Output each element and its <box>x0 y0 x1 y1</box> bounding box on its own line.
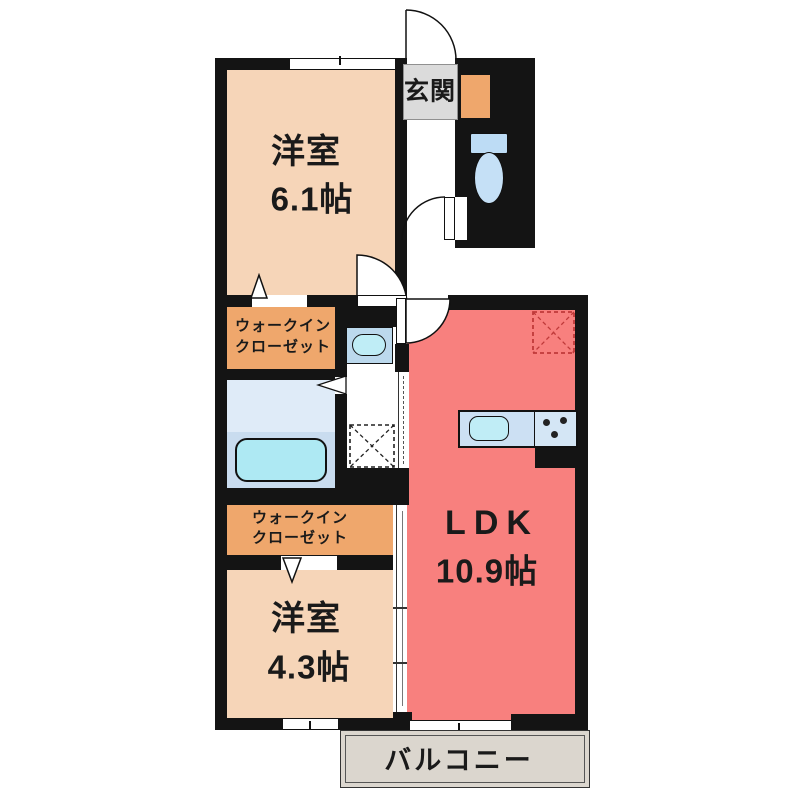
wall-ldk-west-a <box>395 344 409 372</box>
walk-in-closet-lower-label-1: ウォークイン <box>252 511 348 526</box>
window-tick <box>309 721 311 729</box>
ldk-size: 10.9帖 <box>436 555 538 588</box>
bathroom-folding-door-icon <box>316 375 347 396</box>
wall-under-stove <box>535 447 578 468</box>
ldk-door-leaf <box>396 298 406 344</box>
window-tick <box>339 56 341 65</box>
wall-left <box>215 58 227 730</box>
wall-bottom-a <box>215 718 283 730</box>
wall-ldk-north <box>448 295 588 310</box>
wall-bedroom-large-south-a <box>215 295 252 307</box>
floor-plan: 洋室 6.1帖 玄関 ウォークイン クローゼット LDK 10.9帖 ウォークイ… <box>0 0 800 800</box>
washbasin-icon <box>346 327 393 364</box>
bedroom-small-sliding-door <box>393 505 407 712</box>
bedroom-large-name: 洋室 <box>271 135 341 169</box>
toilet-tank-icon <box>470 133 508 154</box>
walk-in-closet-lower-label-2: クローゼット <box>252 531 348 546</box>
shoe-cabinet <box>461 75 490 118</box>
kitchen-counter <box>458 410 578 448</box>
folding-door-icon <box>281 557 303 584</box>
wall-bottom-b <box>338 718 412 730</box>
folding-door-icon <box>249 273 269 300</box>
ldk-name: LDK <box>445 506 539 540</box>
bedroom-small-floor <box>227 570 393 718</box>
refrigerator-space-icon <box>531 310 576 355</box>
bedroom-small-name: 洋室 <box>271 602 341 636</box>
wall-top-left <box>215 58 290 70</box>
entrance-label: 玄関 <box>404 80 456 105</box>
bedroom-large-size: 6.1帖 <box>271 183 354 216</box>
toilet-door-leaf <box>444 197 455 240</box>
bathtub-icon <box>235 438 327 482</box>
wall-ldk-west-b <box>395 468 409 505</box>
toilet-door-opening <box>455 197 467 240</box>
walk-in-closet-upper-label-1: ウォークイン <box>235 319 331 334</box>
toilet-door-swing-icon <box>401 196 447 242</box>
toilet-bowl-icon <box>474 152 504 204</box>
washing-machine-space-icon <box>348 423 396 469</box>
ldk-door-swing-icon <box>405 298 453 346</box>
window-bedroom-large <box>290 58 395 70</box>
washroom-sliding-door <box>395 372 409 468</box>
wall-bathroom-south <box>215 488 397 505</box>
bedroom-small-size: 4.3帖 <box>268 651 351 684</box>
kitchen-sink-icon <box>469 416 509 441</box>
balcony-label: バルコニー <box>384 748 533 775</box>
wall-washroom-south <box>346 468 397 490</box>
stove-icon <box>535 412 576 446</box>
entrance-door-swing-icon <box>402 6 460 64</box>
wall-ldk-east <box>575 295 588 732</box>
walk-in-closet-upper-label-2: クローゼット <box>235 340 331 355</box>
